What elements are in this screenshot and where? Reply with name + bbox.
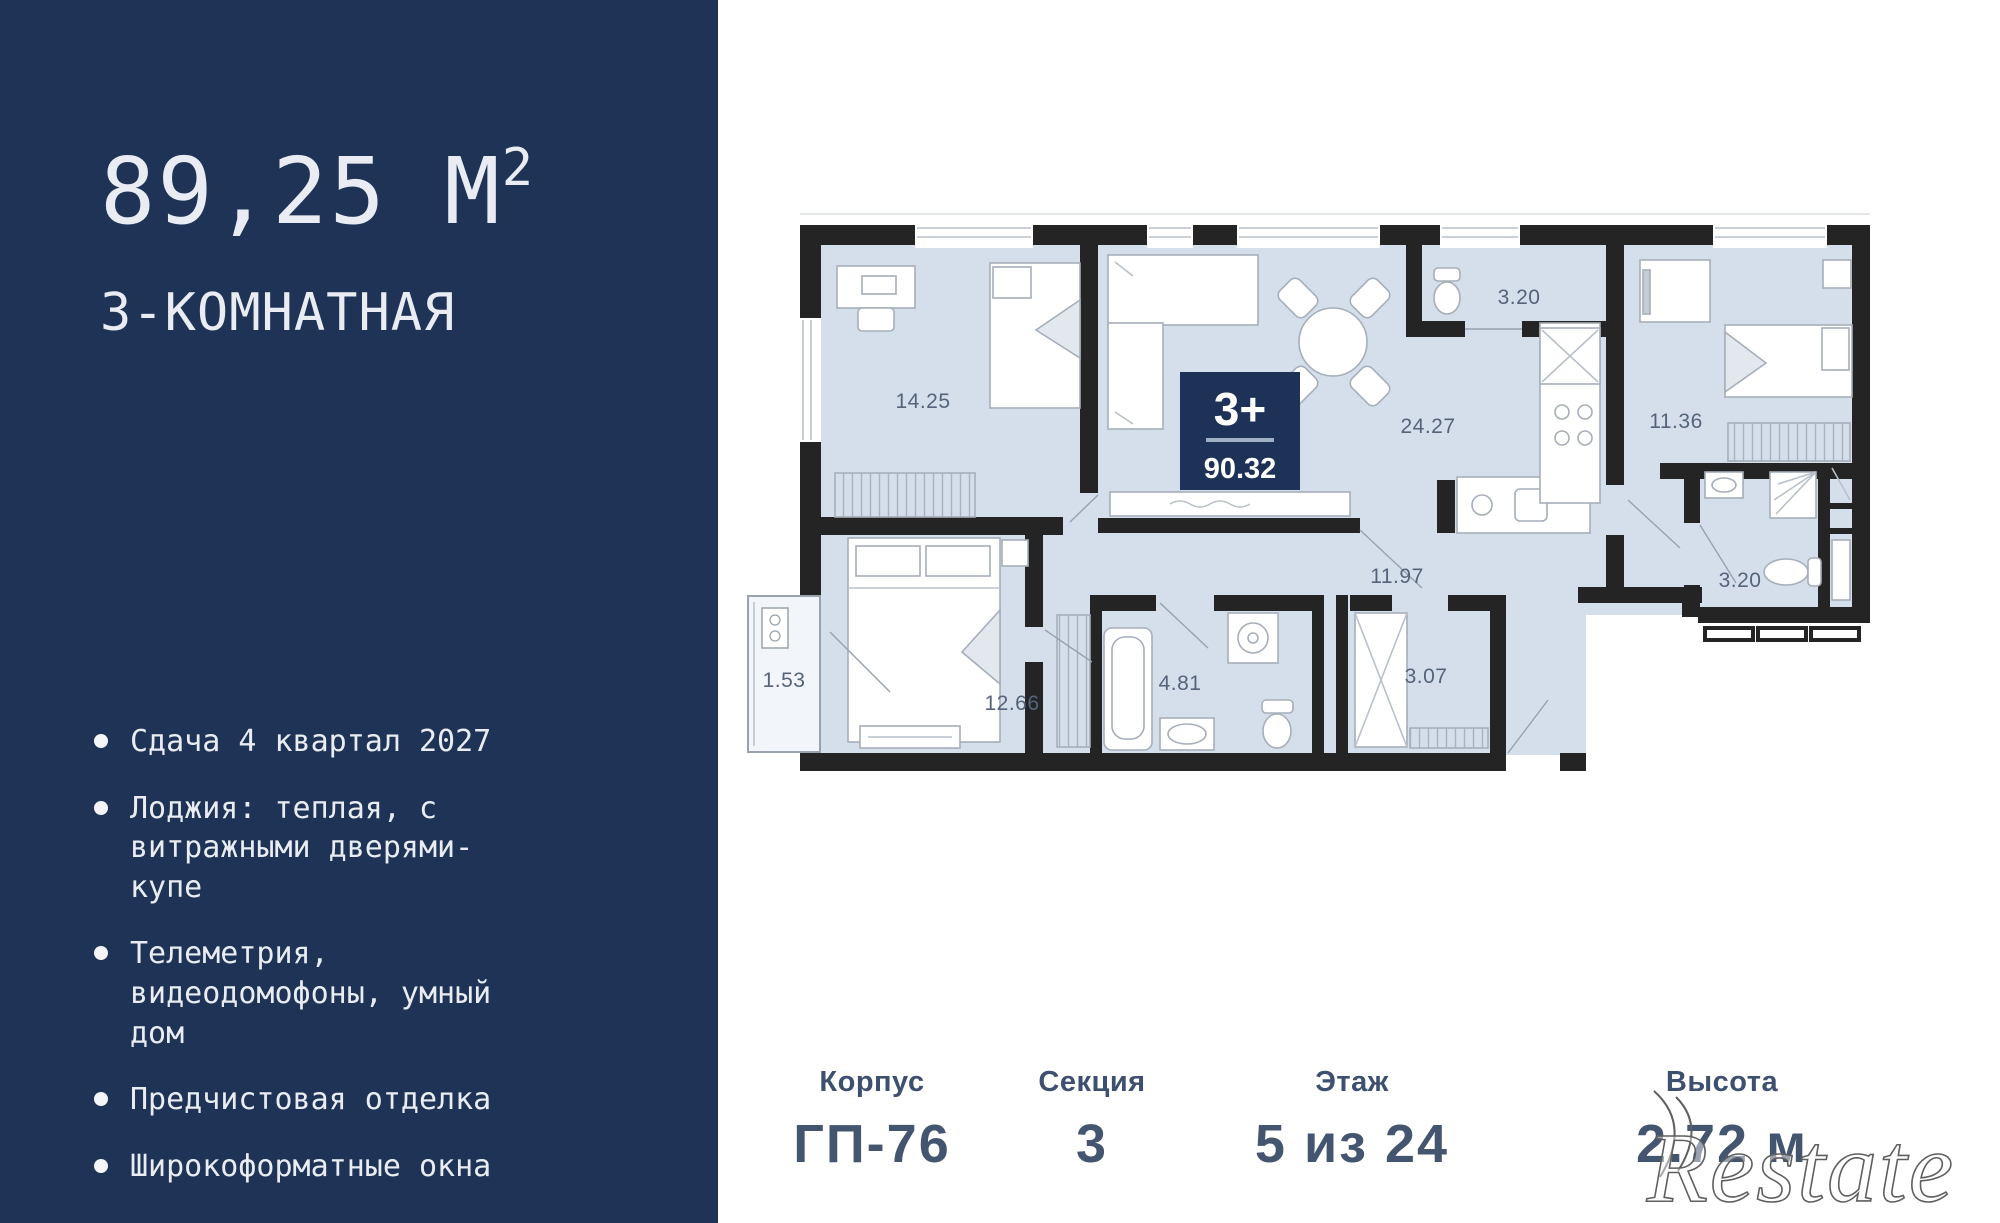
feature-item: Сдача 4 квартал 2027 xyxy=(130,722,522,762)
building-info-bar: Корпус ГП-76 Секция 3 Этаж 5 из 24 Высот… xyxy=(745,1066,1960,1175)
feature-item: Лоджия: теплая, с витражными дверями-куп… xyxy=(130,789,522,908)
info-label: Корпус xyxy=(819,1066,924,1099)
feature-item: Телеметрия, видеодомофоны, умный дом xyxy=(130,934,522,1053)
area-unit: М xyxy=(444,138,501,245)
room-area-bedroom2: 11.36 xyxy=(1649,410,1703,433)
info-value: ГП-76 xyxy=(793,1113,950,1175)
room-area-bedroom1: 14.25 xyxy=(895,390,950,413)
info-vysota: Высота 2.72 м xyxy=(1519,1066,1925,1175)
room-area-living: 24.27 xyxy=(1400,415,1455,438)
area-sup: 2 xyxy=(502,138,535,198)
feature-item: Широкоформатные окна xyxy=(130,1147,522,1187)
info-value: 3 xyxy=(1076,1113,1108,1175)
info-value: 5 из 24 xyxy=(1255,1113,1449,1175)
flat-card: 89,25 М2 3-КОМНАТНАЯ Сдача 4 квартал 202… xyxy=(0,0,2000,1223)
badge-rooms: 3+ xyxy=(1214,383,1266,435)
area-value: 89,25 xyxy=(100,138,387,245)
info-value: 2.72 м xyxy=(1636,1113,1808,1175)
room-area-bathroom: 4.81 xyxy=(1159,672,1202,695)
info-label: Этаж xyxy=(1315,1066,1389,1099)
feature-item: Предчистовая отделка xyxy=(130,1080,522,1120)
room-area-shower-room: 3.20 xyxy=(1719,569,1762,592)
info-korpus: Корпус ГП-76 xyxy=(745,1066,999,1175)
balcony-rails xyxy=(1705,628,1859,640)
furniture-wc-top xyxy=(1434,268,1460,314)
room-area-laundry: 3.07 xyxy=(1405,665,1448,688)
info-sidebar: 89,25 М2 3-КОМНАТНАЯ Сдача 4 квартал 202… xyxy=(0,0,718,1223)
total-area-title: 89,25 М2 xyxy=(100,138,535,245)
badge-divider xyxy=(1206,438,1274,442)
room-area-wc-top: 3.20 xyxy=(1498,286,1541,309)
plan-badge: 3+ 90.32 xyxy=(1180,372,1300,490)
rooms-subtitle: 3-КОМНАТНАЯ xyxy=(100,283,455,343)
loggia: 1.53 xyxy=(748,596,820,752)
room-area-loggia: 1.53 xyxy=(763,669,806,692)
info-label: Секция xyxy=(1038,1066,1145,1099)
badge-total-area: 90.32 xyxy=(1204,453,1277,485)
info-sekcia: Секция 3 xyxy=(999,1066,1185,1175)
floor-plan-svg: 1.53 xyxy=(740,200,1900,850)
info-label: Высота xyxy=(1666,1066,1778,1099)
feature-list: Сдача 4 квартал 2027 Лоджия: теплая, с в… xyxy=(130,722,530,1213)
floor-plan: 1.53 xyxy=(740,200,1900,850)
info-etazh: Этаж 5 из 24 xyxy=(1185,1066,1519,1175)
room-area-hallway: 11.97 xyxy=(1370,565,1424,588)
room-area-bedroom3: 12.66 xyxy=(984,692,1039,715)
